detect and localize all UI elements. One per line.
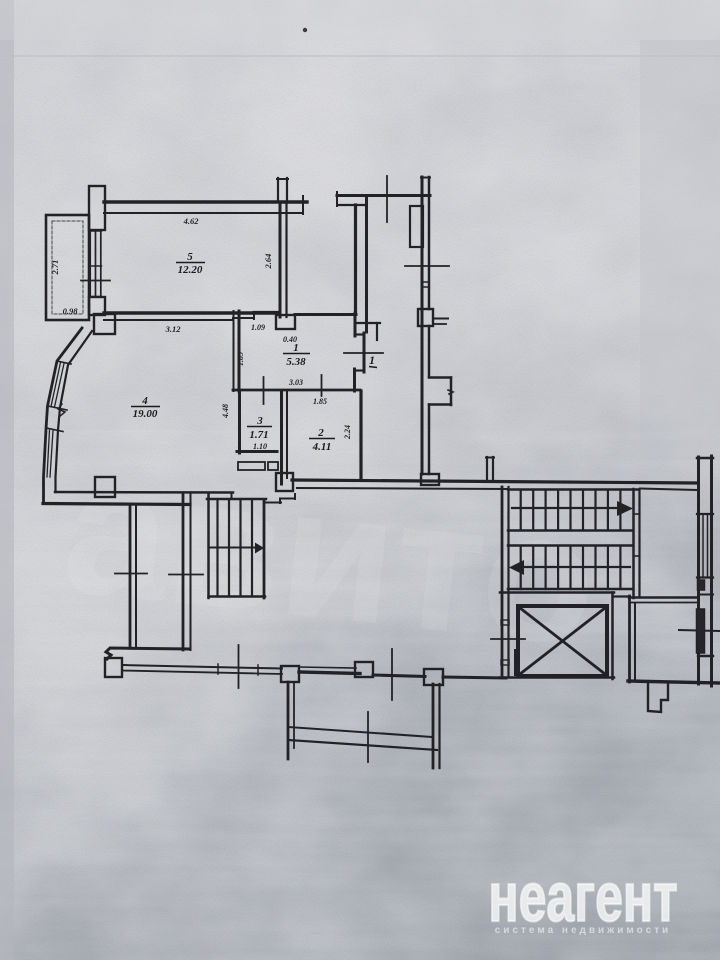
svg-text:5.38: 5.38 [286, 356, 306, 368]
svg-text:0.98: 0.98 [63, 306, 79, 316]
svg-text:3.12: 3.12 [165, 324, 182, 334]
svg-text:4.48: 4.48 [221, 404, 230, 419]
svg-text:1: 1 [293, 342, 299, 354]
svg-text:3: 3 [256, 415, 263, 427]
svg-text:2.24: 2.24 [343, 425, 352, 440]
svg-text:1.10: 1.10 [253, 442, 267, 451]
svg-text:1.89: 1.89 [236, 352, 245, 366]
svg-text:1.09: 1.09 [251, 323, 265, 332]
svg-text:2: 2 [317, 427, 324, 439]
svg-text:12.20: 12.20 [178, 264, 203, 276]
svg-text:1.71: 1.71 [249, 429, 268, 441]
svg-text:2.71: 2.71 [50, 260, 60, 276]
svg-text:2.64: 2.64 [263, 254, 273, 270]
svg-text:4.62: 4.62 [183, 216, 200, 226]
svg-text:1: 1 [369, 353, 375, 367]
svg-text:4.11: 4.11 [312, 441, 332, 453]
svg-text:3.03: 3.03 [288, 378, 303, 387]
svg-text:1.85: 1.85 [313, 397, 327, 406]
svg-text:5: 5 [187, 251, 193, 263]
svg-text:4: 4 [141, 395, 148, 407]
svg-text:система недвижимости: система недвижимости [495, 925, 672, 936]
svg-text:19.00: 19.00 [133, 408, 158, 420]
